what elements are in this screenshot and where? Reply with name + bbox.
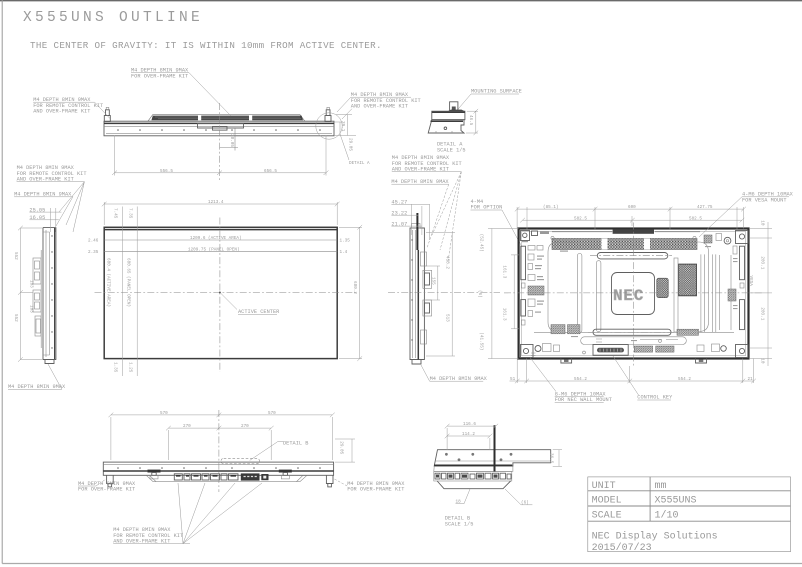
svg-text:NEC Display Solutions: NEC Display Solutions (592, 530, 718, 542)
svg-text:10: 10 (760, 358, 765, 364)
svg-text:FOR OVER-FRAME KIT: FOR OVER-FRAME KIT (347, 487, 404, 493)
svg-text:554.2: 554.2 (574, 377, 587, 382)
svg-text:103: 103 (29, 305, 34, 313)
svg-text:(52.45): (52.45) (479, 234, 484, 252)
svg-text:161.3: 161.3 (502, 265, 507, 278)
svg-text:21.07: 21.07 (391, 221, 407, 227)
svg-text:AND OVER-FRAME KIT: AND OVER-FRAME KIT (33, 108, 90, 114)
svg-text:1209.75 (PANEL OPEN): 1209.75 (PANEL OPEN) (188, 248, 240, 253)
svg-text:25.05: 25.05 (29, 207, 45, 213)
svg-text:556.5: 556.5 (160, 169, 173, 174)
svg-text:270: 270 (241, 424, 249, 429)
svg-text:1209.6 (ACTIVE AREA): 1209.6 (ACTIVE AREA) (190, 236, 242, 241)
svg-text:1.35: 1.35 (113, 362, 118, 373)
svg-text:DETAIL A: DETAIL A (349, 161, 370, 166)
svg-text:427.75: 427.75 (697, 205, 713, 210)
svg-text:10: 10 (760, 220, 765, 226)
svg-text:VESA: VESA (748, 276, 753, 287)
svg-text:114.2: 114.2 (462, 432, 475, 437)
svg-text:7.35: 7.35 (128, 208, 133, 219)
svg-text:ACTIVE CENTER: ACTIVE CENTER (238, 309, 280, 315)
svg-text:155: 155 (431, 277, 436, 285)
svg-text:2.46: 2.46 (88, 239, 99, 244)
svg-text:1.25: 1.25 (128, 362, 133, 373)
svg-text:203.1: 203.1 (760, 307, 765, 320)
svg-text:570: 570 (160, 411, 168, 416)
svg-text:552: 552 (13, 252, 18, 260)
svg-text:THE CENTER OF GRAVITY: IT IS W: THE CENTER OF GRAVITY: IT IS WITHIN 10mm… (30, 40, 382, 51)
svg-text:554.2: 554.2 (678, 377, 691, 382)
svg-text:656.5: 656.5 (264, 169, 277, 174)
svg-text:mm: mm (655, 481, 667, 492)
svg-text:161.3: 161.3 (502, 308, 507, 321)
svg-text:NEC: NEC (613, 287, 644, 305)
svg-text:103: 103 (29, 280, 34, 288)
svg-text:SCALE: SCALE (592, 511, 622, 522)
svg-text:600: 600 (628, 205, 636, 210)
svg-text:21: 21 (748, 377, 754, 382)
svg-text:513: 513 (444, 314, 449, 322)
svg-text:(41.55): (41.55) (479, 332, 484, 350)
svg-text:SCALE 1/5: SCALE 1/5 (437, 148, 466, 154)
svg-text:29.05: 29.05 (348, 138, 353, 151)
svg-text:203.1: 203.1 (760, 256, 765, 269)
svg-text:MODEL: MODEL (592, 496, 622, 507)
svg-text:X555UNS OUTLINE: X555UNS OUTLINE (23, 10, 203, 26)
svg-text:23.22: 23.22 (391, 210, 407, 216)
svg-text:39.1: 39.1 (340, 121, 345, 132)
svg-text:458.2: 458.2 (444, 256, 449, 269)
svg-text:SCALE 1/5: SCALE 1/5 (445, 521, 474, 527)
svg-text:UNIT: UNIT (592, 481, 616, 492)
svg-text:DETAIL B: DETAIL B (283, 441, 308, 447)
svg-text:7.45: 7.45 (113, 208, 118, 219)
svg-text:1213.4: 1213.4 (208, 200, 224, 205)
svg-text:29.05: 29.05 (339, 441, 344, 454)
svg-text:1/10: 1/10 (655, 510, 679, 522)
svg-text:16.05: 16.05 (29, 215, 45, 221)
svg-text:270: 270 (183, 424, 191, 429)
svg-text:(85.1): (85.1) (543, 205, 558, 210)
svg-text:2015/07/23: 2015/07/23 (592, 542, 652, 554)
svg-text:680.65 (PANEL OPEN): 680.65 (PANEL OPEN) (126, 258, 131, 307)
svg-text:AND OVER-FRAME KIT: AND OVER-FRAME KIT (351, 104, 408, 110)
svg-text:FOR VESA MOUNT: FOR VESA MOUNT (742, 197, 787, 203)
svg-text:MOUNTING SURFACE: MOUNTING SURFACE (471, 89, 522, 95)
svg-text:570: 570 (268, 411, 276, 416)
svg-text:1.35: 1.35 (340, 239, 351, 244)
svg-text:116.6: 116.6 (463, 422, 476, 427)
svg-text:38.05: 38.05 (229, 134, 234, 147)
svg-text:45.27: 45.27 (391, 200, 407, 206)
svg-text:FOR OVER-FRAME KIT: FOR OVER-FRAME KIT (78, 487, 135, 493)
svg-text:582.5: 582.5 (689, 216, 702, 221)
svg-text:(6): (6) (477, 290, 482, 298)
svg-text:46.5: 46.5 (468, 115, 473, 126)
svg-text:1.4: 1.4 (340, 250, 348, 255)
svg-text:X555UNS: X555UNS (655, 496, 697, 507)
svg-text:582.5: 582.5 (574, 216, 587, 221)
svg-text:36.5: 36.5 (549, 453, 554, 464)
svg-text:680.4 (ACTIVE AREA): 680.4 (ACTIVE AREA) (106, 258, 111, 307)
svg-text:552: 552 (13, 314, 18, 322)
svg-text:2.35: 2.35 (88, 250, 99, 255)
svg-text:51: 51 (510, 377, 516, 382)
svg-text:FOR OVER-FRAME KIT: FOR OVER-FRAME KIT (131, 73, 188, 79)
